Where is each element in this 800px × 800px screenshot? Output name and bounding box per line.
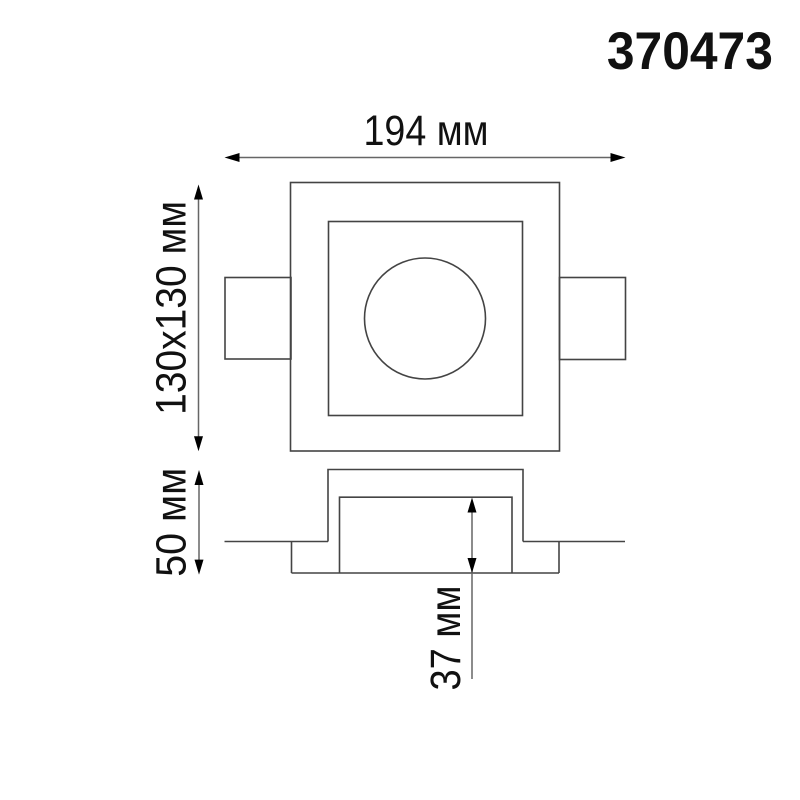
svg-text:194 мм: 194 мм — [364, 107, 489, 155]
svg-text:130x130 мм: 130x130 мм — [148, 201, 196, 415]
svg-text:50 мм: 50 мм — [148, 468, 196, 577]
svg-text:370473: 370473 — [607, 22, 773, 81]
svg-text:37 мм: 37 мм — [422, 586, 470, 691]
